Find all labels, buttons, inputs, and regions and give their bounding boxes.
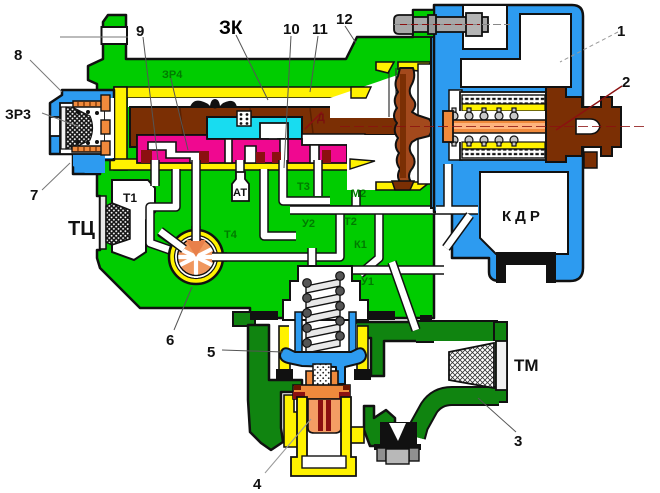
svg-text:6: 6 [166, 332, 174, 349]
svg-text:ЗР4: ЗР4 [162, 69, 183, 81]
svg-text:2: 2 [622, 74, 630, 91]
svg-text:ЗР3: ЗР3 [5, 106, 31, 122]
svg-text:12: 12 [336, 11, 353, 28]
svg-text:Т1: Т1 [123, 191, 137, 205]
svg-text:5: 5 [207, 344, 215, 361]
svg-text:М2: М2 [351, 188, 366, 200]
svg-text:9: 9 [136, 23, 144, 40]
svg-text:Т2: Т2 [344, 216, 357, 228]
svg-text:ТМ: ТМ [514, 356, 539, 375]
svg-text:11: 11 [312, 21, 328, 38]
svg-text:ЗК: ЗК [219, 18, 243, 39]
svg-text:1: 1 [617, 23, 625, 40]
svg-text:Т3: Т3 [297, 181, 310, 193]
svg-text:4: 4 [253, 476, 262, 493]
svg-text:Д: Д [317, 112, 325, 124]
svg-text:8: 8 [14, 47, 22, 64]
svg-text:3: 3 [514, 433, 522, 450]
svg-text:10: 10 [283, 21, 300, 38]
svg-text:ТЦ: ТЦ [68, 218, 95, 240]
svg-text:КДР: КДР [502, 208, 544, 225]
svg-text:У2: У2 [302, 218, 315, 230]
svg-text:7: 7 [30, 187, 38, 204]
svg-text:АТ: АТ [233, 187, 247, 199]
svg-text:Т4: Т4 [224, 229, 238, 241]
svg-text:К1: К1 [354, 239, 367, 251]
svg-text:У1: У1 [361, 276, 374, 288]
